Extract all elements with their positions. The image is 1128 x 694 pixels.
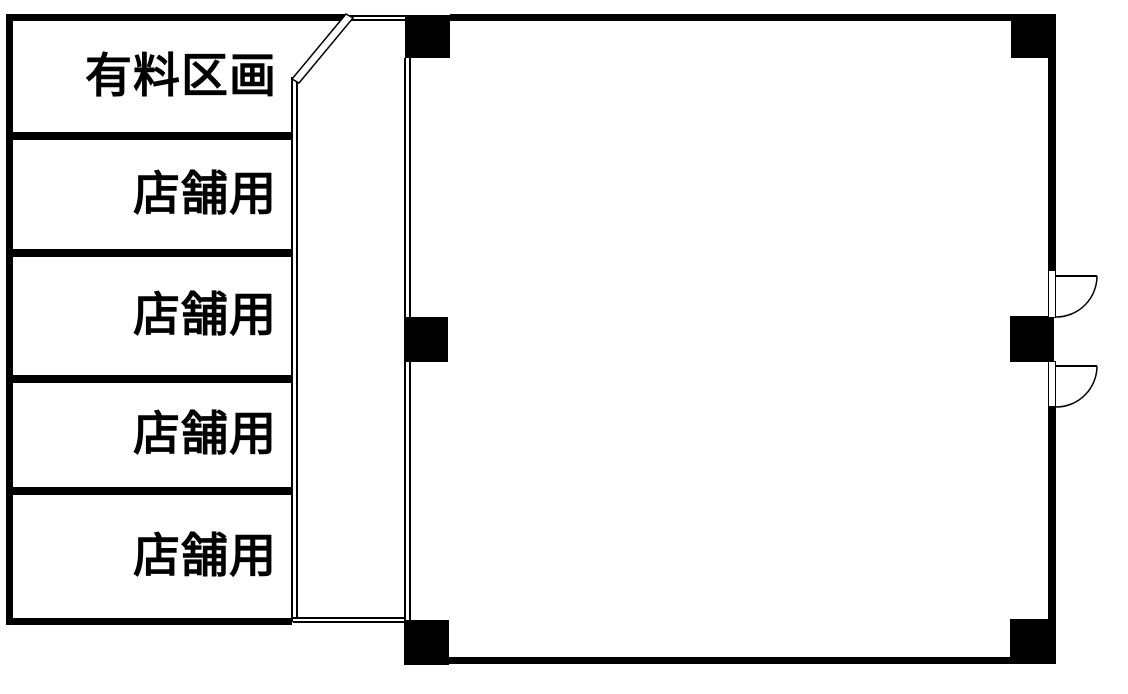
main-room-east-wall-upper xyxy=(1048,58,1056,270)
room-label-shop-3: 店舗用 xyxy=(6,383,277,487)
partition-wall-4 xyxy=(6,487,292,495)
partition-wall-1 xyxy=(6,132,292,140)
floor-plan-canvas: 有料区画 店舗用 店舗用 店舗用 店舗用 xyxy=(0,0,1128,694)
corridor-west-wall xyxy=(291,77,298,622)
corridor-south-wall xyxy=(293,617,404,623)
main-room-north-wall xyxy=(450,14,1011,21)
room-label-shop-1: 店舗用 xyxy=(6,140,277,249)
left-block-south-wall xyxy=(6,618,292,625)
partition-wall-2 xyxy=(6,249,292,257)
room-label-shop-2: 店舗用 xyxy=(6,257,277,375)
pillar-west-middle xyxy=(405,317,448,362)
door-frame-upper xyxy=(1048,270,1056,318)
door-swing-upper-icon xyxy=(1056,276,1097,317)
pillar-northeast xyxy=(1011,14,1056,58)
door-swing-lower-icon xyxy=(1056,366,1097,407)
pillar-east-middle xyxy=(1010,316,1054,362)
room-label-paid-section: 有料区画 xyxy=(6,21,277,132)
left-block-north-wall xyxy=(6,14,347,21)
door-frame-lower xyxy=(1048,361,1056,407)
main-room-south-wall xyxy=(449,657,1011,664)
room-label-shop-4: 店舗用 xyxy=(6,495,277,618)
entrance-north-wall xyxy=(347,15,406,21)
pillar-southwest xyxy=(404,620,449,665)
main-room-east-wall-lower xyxy=(1048,407,1056,619)
partition-wall-3 xyxy=(6,375,292,383)
pillar-northwest xyxy=(405,15,450,58)
pillar-southeast xyxy=(1010,619,1056,664)
angled-wall xyxy=(292,14,353,83)
